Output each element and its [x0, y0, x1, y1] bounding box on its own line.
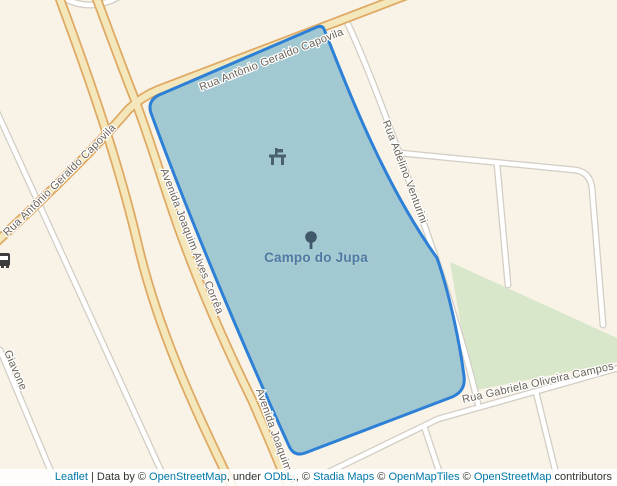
odbl-link[interactable]: ODbL.: [264, 471, 296, 483]
attribution-text: | Data by ©: [88, 471, 149, 483]
openstreetmap-link[interactable]: OpenStreetMap: [149, 471, 227, 483]
openstreetmap-contributors-link[interactable]: OpenStreetMap: [474, 471, 552, 483]
leaflet-link[interactable]: Leaflet: [55, 471, 88, 483]
attribution-text: contributors: [551, 471, 612, 483]
map-canvas: Rua Antônio Geraldo Capovila Rua Antônio…: [0, 0, 617, 486]
map[interactable]: Rua Antônio Geraldo Capovila Rua Antônio…: [0, 0, 617, 486]
openmaptiles-link[interactable]: OpenMapTiles: [388, 471, 459, 483]
place-label-campo-do-jupa: Campo do Jupa: [264, 250, 368, 265]
attribution-text: ©: [460, 471, 474, 483]
attribution-text: ©: [374, 471, 388, 483]
bus-stop-icon: [0, 253, 10, 268]
attribution-text: , ©: [296, 471, 313, 483]
stadia-maps-link[interactable]: Stadia Maps: [313, 471, 374, 483]
attribution-bar: Leaflet | Data by © OpenStreetMap, under…: [0, 469, 617, 486]
attribution-text: , under: [227, 471, 264, 483]
